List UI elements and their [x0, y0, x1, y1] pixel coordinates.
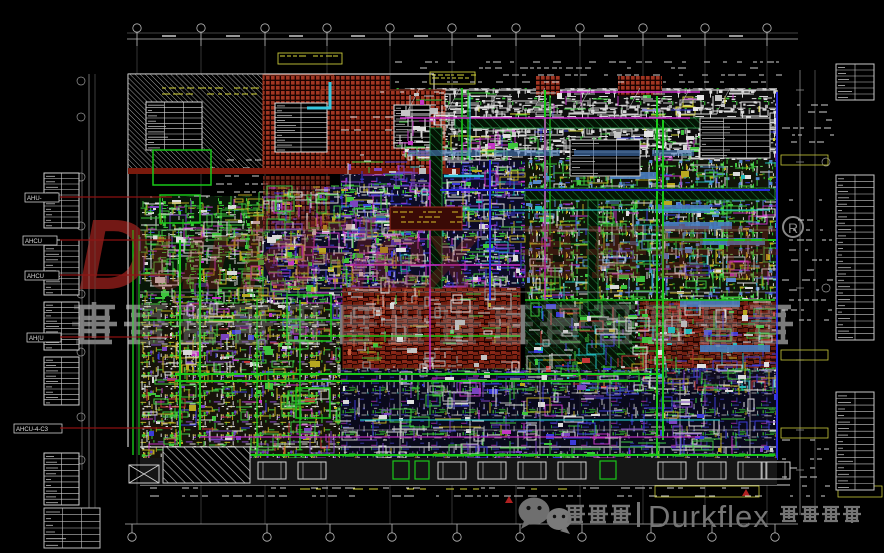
- svg-text:AHCU-4-C3: AHCU-4-C3: [16, 427, 49, 433]
- svg-text:DurkFlex: DurkFlex: [78, 199, 481, 311]
- svg-text:AHU-: AHU-: [27, 196, 42, 202]
- svg-text:AHCU: AHCU: [25, 239, 42, 245]
- svg-text:AH(U: AH(U: [29, 336, 44, 342]
- svg-text:Durkflex: Durkflex: [648, 499, 770, 534]
- svg-text:R: R: [788, 220, 798, 236]
- svg-text:AHCU: AHCU: [27, 274, 44, 280]
